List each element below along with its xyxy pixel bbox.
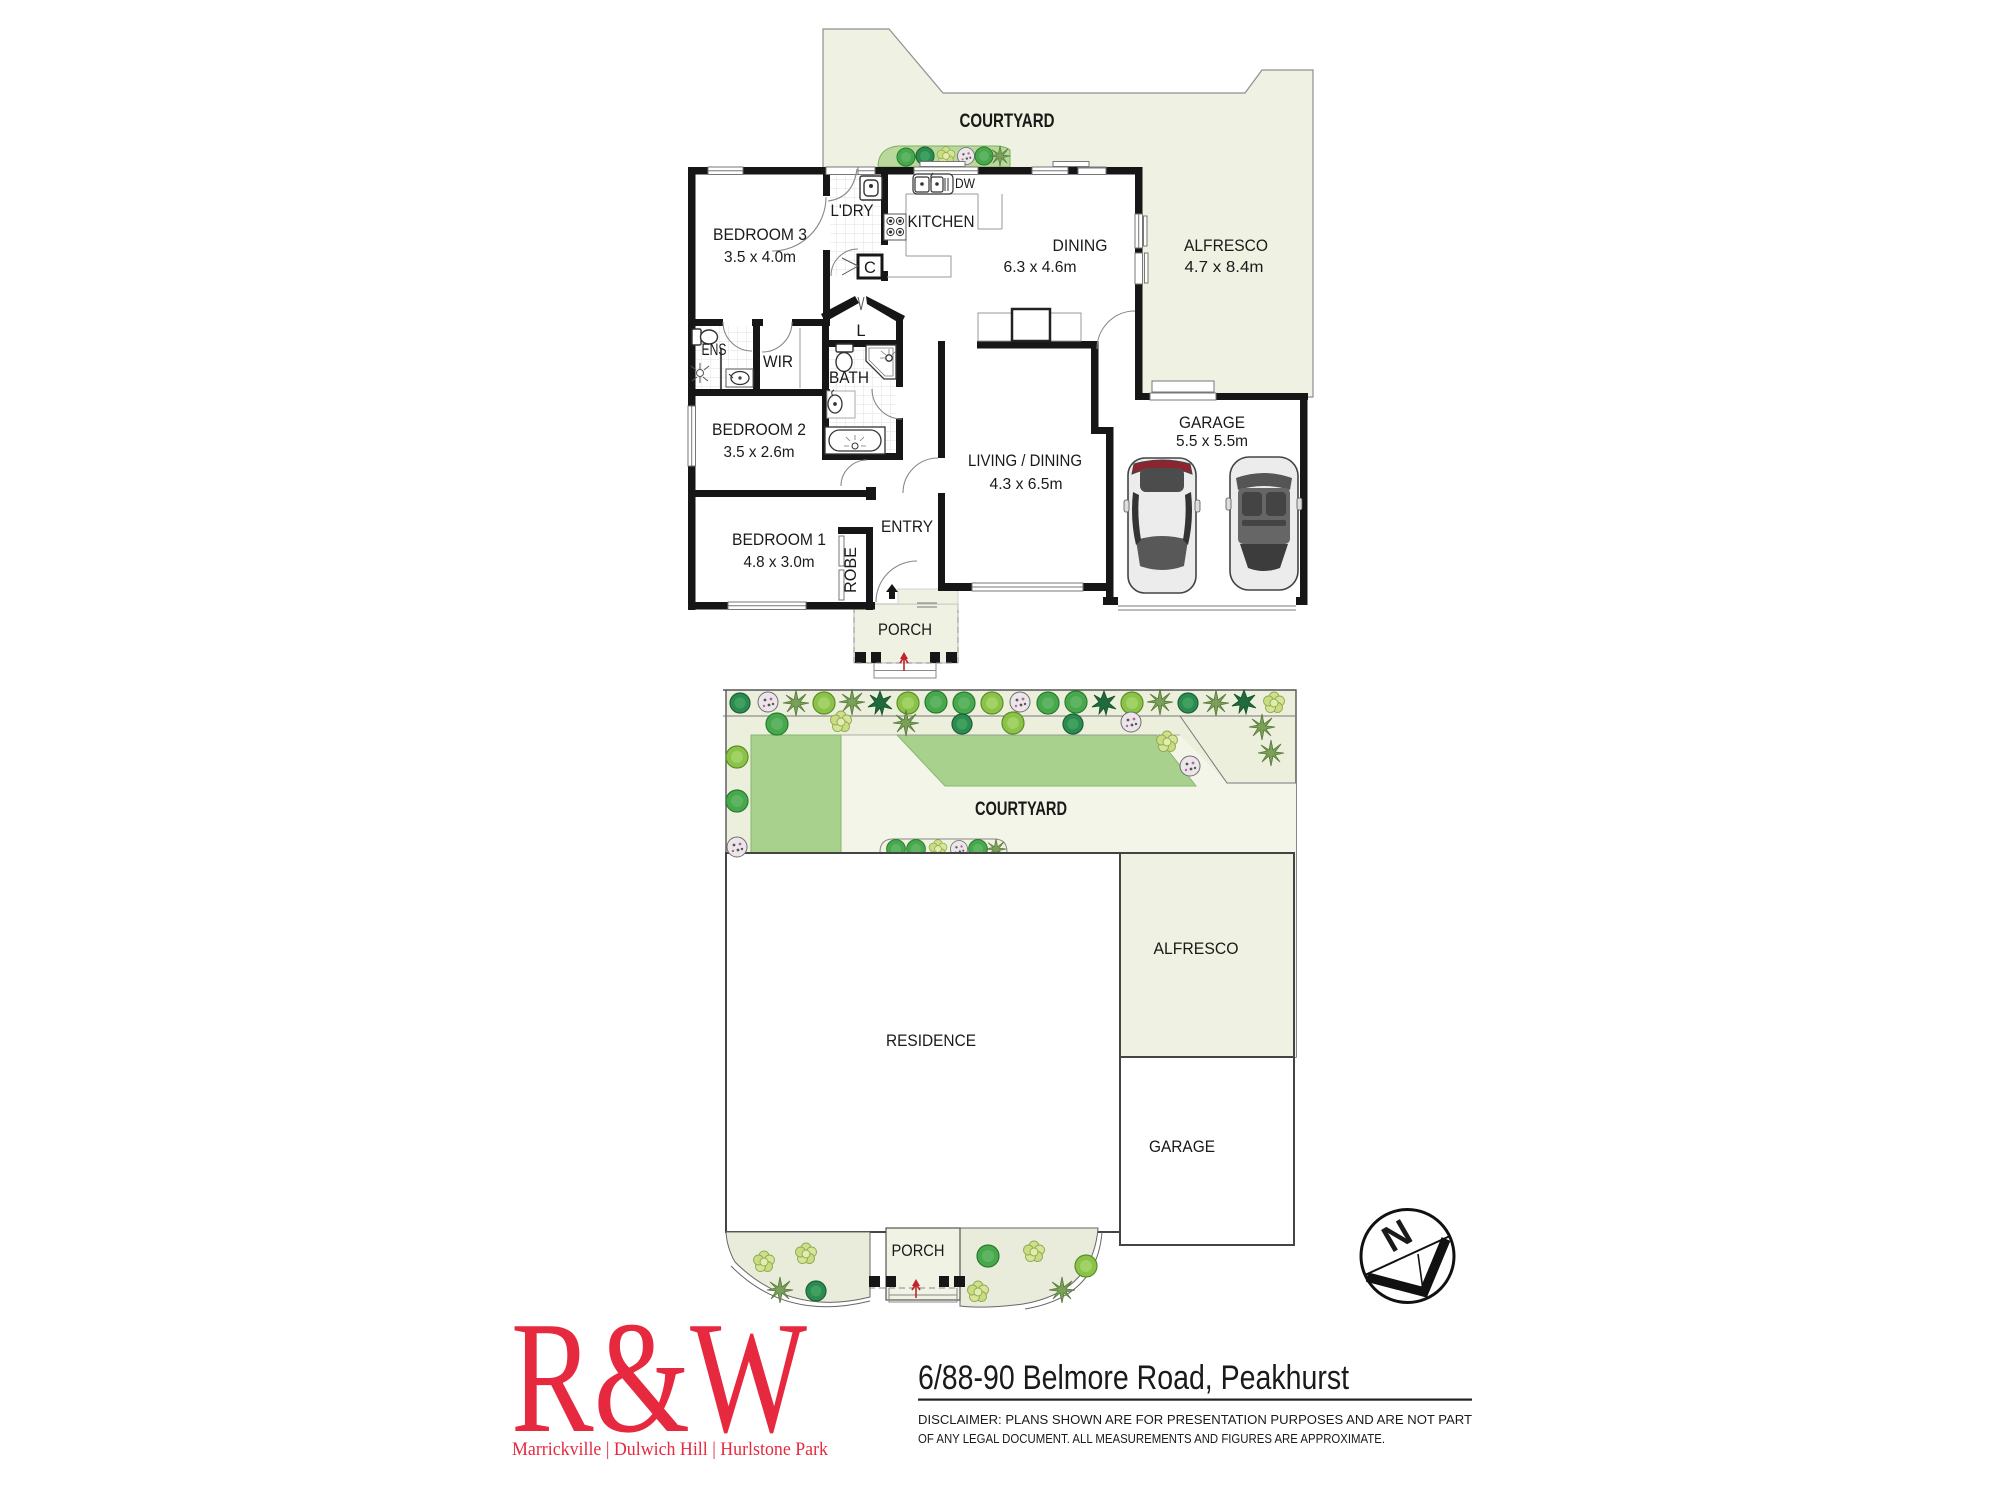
svg-text:BEDROOM 1: BEDROOM 1	[732, 531, 826, 549]
svg-text:GARAGE: GARAGE	[1179, 414, 1245, 432]
svg-text:BATH: BATH	[829, 369, 869, 387]
svg-text:6/88-90 Belmore Road, Peakhurs: 6/88-90 Belmore Road, Peakhurst	[918, 1359, 1349, 1397]
svg-text:4.3 x 6.5m: 4.3 x 6.5m	[990, 476, 1063, 493]
svg-text:L: L	[856, 322, 865, 340]
svg-text:ALFRESCO: ALFRESCO	[1184, 237, 1268, 255]
svg-text:ENTRY: ENTRY	[881, 518, 933, 536]
svg-text:PORCH: PORCH	[892, 1242, 945, 1260]
svg-text:C: C	[864, 259, 876, 277]
svg-text:L'DRY: L'DRY	[831, 202, 874, 220]
svg-text:OF ANY LEGAL DOCUMENT. ALL MEA: OF ANY LEGAL DOCUMENT. ALL MEASUREMENTS …	[918, 1431, 1385, 1446]
svg-text:3.5 x 4.0m: 3.5 x 4.0m	[724, 249, 796, 266]
svg-text:3.5 x 2.6m: 3.5 x 2.6m	[724, 444, 795, 461]
svg-text:5.5 x 5.5m: 5.5 x 5.5m	[1176, 433, 1248, 450]
svg-text:LIVING / DINING: LIVING / DINING	[968, 452, 1082, 470]
svg-text:GARAGE: GARAGE	[1149, 1138, 1215, 1156]
svg-text:6.3 x 4.6m: 6.3 x 4.6m	[1004, 259, 1077, 276]
svg-text:DW: DW	[955, 175, 976, 191]
svg-text:4.8 x 3.0m: 4.8 x 3.0m	[744, 554, 815, 571]
svg-text:4.7 x 8.4m: 4.7 x 8.4m	[1185, 259, 1264, 276]
svg-text:DINING: DINING	[1053, 237, 1108, 255]
svg-text:Marrickville | Dulwich Hill |: Marrickville | Dulwich Hill | Hurlstone …	[512, 1439, 828, 1460]
svg-text:KITCHEN: KITCHEN	[908, 213, 975, 231]
svg-text:WIR: WIR	[763, 353, 793, 371]
svg-text:ROBE: ROBE	[842, 547, 860, 593]
svg-text:ALFRESCO: ALFRESCO	[1154, 940, 1239, 958]
svg-text:PORCH: PORCH	[878, 621, 932, 639]
svg-text:ENS: ENS	[702, 341, 727, 359]
svg-text:BEDROOM 2: BEDROOM 2	[712, 421, 806, 439]
svg-text:COURTYARD: COURTYARD	[975, 798, 1067, 820]
svg-text:BEDROOM 3: BEDROOM 3	[713, 226, 807, 244]
svg-text:COURTYARD: COURTYARD	[960, 110, 1055, 132]
svg-text:RESIDENCE: RESIDENCE	[886, 1032, 976, 1050]
svg-text:DISCLAIMER: PLANS SHOWN ARE F: DISCLAIMER: PLANS SHOWN ARE FOR PRESENTA…	[918, 1412, 1472, 1427]
